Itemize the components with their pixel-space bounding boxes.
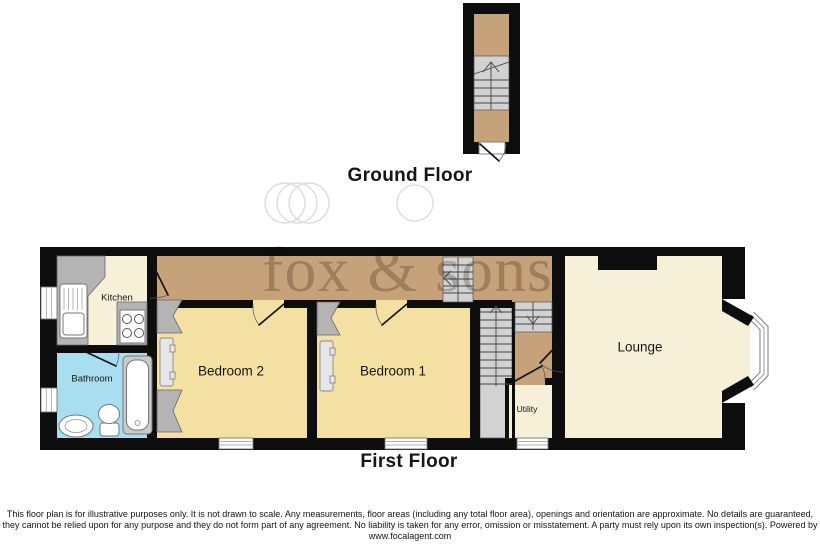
kitchen-hob	[117, 302, 147, 345]
disclaimer-line-1: This floor plan is for illustrative purp…	[0, 509, 820, 520]
bedroom2-window	[219, 438, 253, 449]
bathroom-label: Bathroom	[71, 374, 112, 385]
kitchen-sink	[60, 284, 87, 338]
bedroom2-label: Bedroom 2	[198, 364, 264, 379]
ground-floor-label: Ground Floor	[348, 165, 473, 187]
bedroom2-radiator	[160, 338, 175, 386]
toilet	[99, 405, 120, 437]
kitchen-label: Kitchen	[101, 293, 133, 304]
disclaimer-line-3: www.focalagent.com	[0, 531, 820, 542]
floorplan-canvas: fox & sons Ground Floor First Floor Kitc…	[0, 0, 820, 546]
watermark-circle	[289, 183, 329, 223]
watermark-circles	[265, 183, 433, 223]
basin	[59, 415, 93, 437]
kitchen-window	[41, 287, 57, 319]
bay-window	[722, 299, 764, 403]
first-floor-label: First Floor	[360, 451, 457, 473]
bedroom1-window	[385, 438, 427, 449]
lounge-label: Lounge	[617, 340, 662, 355]
agency-watermark: fox & sons	[262, 238, 553, 302]
disclaimer-text: This floor plan is for illustrative purp…	[0, 509, 820, 541]
bathroom-window	[41, 388, 57, 412]
ground-floor-plan	[463, 3, 520, 161]
ground-floor-stairs	[474, 56, 509, 110]
landing-steps	[515, 302, 552, 332]
bedroom1-label: Bedroom 1	[360, 364, 426, 379]
bedroom1-radiator	[320, 341, 335, 391]
front-door	[479, 142, 506, 161]
utility-window	[517, 438, 548, 449]
watermark-circle	[397, 185, 433, 221]
bathtub	[123, 356, 152, 434]
disclaimer-line-2: they cannot be relied upon for any purpo…	[0, 520, 820, 531]
chimney-breast	[598, 256, 657, 270]
utility-label: Utility	[517, 404, 538, 414]
watermark-circle	[265, 183, 305, 223]
watermark-circle	[277, 183, 317, 223]
